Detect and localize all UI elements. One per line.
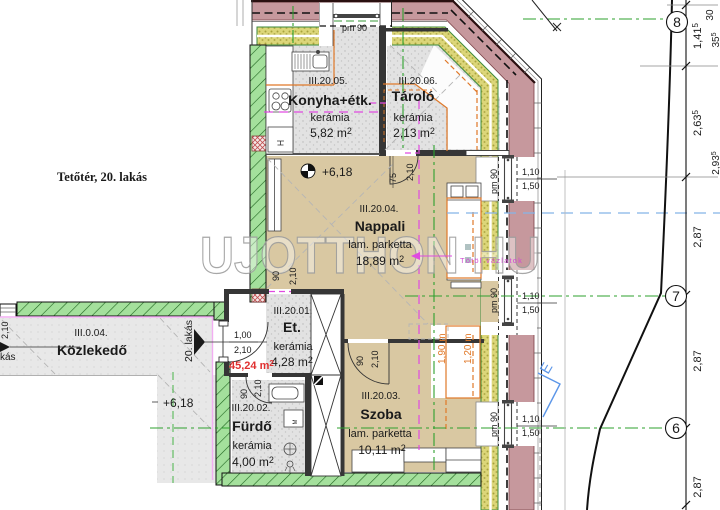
svg-text:Konyha+étk.: Konyha+étk. [288, 92, 372, 108]
svg-text:Közlekedő: Közlekedő [57, 342, 127, 358]
svg-text:Nappali: Nappali [355, 218, 406, 234]
svg-text:1,50: 1,50 [522, 181, 540, 191]
svg-text:5,82 m2: 5,82 m2 [310, 126, 352, 140]
svg-text:90: 90 [239, 389, 249, 399]
svg-text:1,90 m: 1,90 m [437, 333, 448, 364]
svg-text:4,28 m2: 4,28 m2 [271, 355, 313, 369]
svg-text:Et.: Et. [283, 319, 301, 335]
svg-text:2,10: 2,10 [370, 350, 380, 368]
svg-text:Szoba: Szoba [360, 406, 401, 422]
svg-text:2,87: 2,87 [692, 350, 704, 371]
svg-text:pm 90: pm 90 [342, 23, 367, 33]
svg-text:90: 90 [271, 271, 281, 281]
svg-text:III.20.02.: III.20.02. [232, 403, 271, 414]
svg-text:1,50: 1,50 [522, 428, 540, 438]
svg-text:6: 6 [672, 420, 680, 436]
svg-text:M: M [293, 420, 299, 425]
svg-text:pm 90: pm 90 [489, 288, 499, 313]
svg-text:Tároló: Tároló [392, 88, 435, 104]
svg-text:1,10: 1,10 [522, 291, 540, 301]
svg-text:1,10: 1,10 [522, 414, 540, 424]
svg-text:kerámia: kerámia [232, 440, 272, 452]
svg-text:kerámia: kerámia [310, 112, 350, 124]
svg-text:1,50: 1,50 [522, 305, 540, 315]
svg-text:2,13 m2: 2,13 m2 [393, 126, 435, 140]
svg-text:III.20.04.: III.20.04. [360, 204, 399, 215]
svg-text:1,00: 1,00 [234, 330, 252, 340]
svg-text:8: 8 [673, 14, 681, 30]
svg-text:Tötöl vázlatok: Tötöl vázlatok [460, 256, 523, 265]
svg-text:lam. parketta: lam. parketta [348, 239, 412, 251]
svg-text:pm 90: pm 90 [489, 412, 499, 437]
svg-text:lam. parketta: lam. parketta [348, 428, 412, 440]
svg-text:30: 30 [705, 9, 716, 21]
svg-text:2,87: 2,87 [692, 226, 704, 247]
svg-text:+6,18: +6,18 [163, 396, 194, 410]
svg-text:III.20.03.: III.20.03. [362, 391, 401, 402]
svg-text:Fürdő: Fürdő [232, 418, 272, 434]
svg-text:pm 90: pm 90 [489, 169, 499, 194]
svg-text:kás: kás [0, 352, 16, 363]
svg-text:45,24 m2: 45,24 m2 [229, 359, 274, 372]
svg-text:kerámia: kerámia [273, 341, 313, 353]
svg-text:20. lakás: 20. lakás [183, 320, 195, 362]
svg-text:III.20.06.: III.20.06. [399, 76, 438, 87]
svg-text:+6,18: +6,18 [322, 165, 353, 179]
svg-text:III.20.05.: III.20.05. [309, 76, 348, 87]
svg-text:2,10: 2,10 [288, 267, 298, 285]
svg-text:1,10: 1,10 [522, 167, 540, 177]
svg-text:1,20 m: 1,20 m [463, 333, 474, 364]
svg-text:10,11 m2: 10,11 m2 [358, 443, 405, 457]
svg-text:kerámia: kerámia [393, 112, 433, 124]
svg-text:III.0.04.: III.0.04. [74, 328, 107, 339]
svg-text:2,10: 2,10 [234, 345, 252, 355]
svg-text:4,00 m2: 4,00 m2 [232, 455, 274, 469]
svg-text:Tetőtér, 20. lakás: Tetőtér, 20. lakás [57, 170, 147, 184]
svg-text:2,10: 2,10 [405, 163, 415, 181]
svg-text:18,89 m2: 18,89 m2 [356, 254, 404, 268]
svg-text:III.20.01.: III.20.01. [274, 306, 313, 317]
svg-text:2,10: 2,10 [0, 321, 10, 339]
svg-text:2,87: 2,87 [692, 476, 704, 497]
svg-text:2,10: 2,10 [253, 379, 263, 397]
svg-text:7: 7 [672, 288, 680, 304]
svg-text:90: 90 [355, 356, 365, 366]
